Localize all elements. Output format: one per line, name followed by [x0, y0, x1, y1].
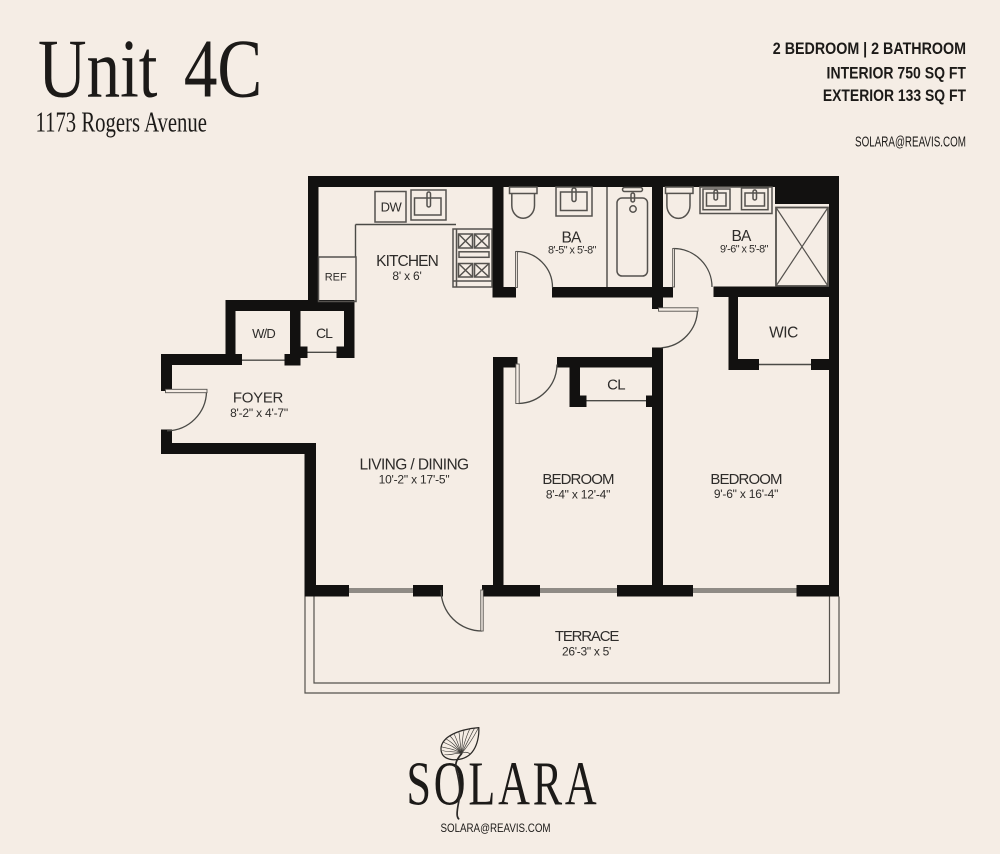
svg-text:REF: REF: [325, 271, 347, 283]
svg-text:8'-2" x 4'-7": 8'-2" x 4'-7": [230, 406, 288, 420]
svg-text:SOLARA@REAVIS.COM: SOLARA@REAVIS.COM: [855, 134, 966, 150]
svg-text:DW: DW: [381, 199, 403, 214]
svg-text:9'-6" x 5'-8": 9'-6" x 5'-8": [720, 244, 769, 256]
svg-text:LIVING / DINING: LIVING / DINING: [360, 457, 469, 474]
svg-text:W/D: W/D: [252, 326, 275, 341]
svg-text:8'-5" x 5'-8": 8'-5" x 5'-8": [548, 245, 597, 257]
svg-text:TERRACE: TERRACE: [555, 628, 619, 645]
svg-text:CL: CL: [316, 325, 333, 341]
svg-text:BA: BA: [731, 228, 752, 245]
svg-text:9'-6" x 16'-4": 9'-6" x 16'-4": [714, 487, 778, 501]
svg-text:WIC: WIC: [769, 325, 798, 342]
svg-text:KITCHEN: KITCHEN: [376, 253, 438, 270]
svg-text:BEDROOM: BEDROOM: [710, 471, 782, 488]
svg-text:8'-4" x 12'-4": 8'-4" x 12'-4": [546, 488, 610, 502]
svg-text:CL: CL: [607, 377, 625, 394]
svg-text:BEDROOM: BEDROOM: [542, 471, 614, 488]
svg-text:8' x 6': 8' x 6': [392, 269, 421, 283]
svg-text:INTERIOR 750 SQ FT: INTERIOR 750 SQ FT: [827, 64, 967, 83]
svg-text:FOYER: FOYER: [233, 390, 284, 407]
svg-text:26'-3" x 5': 26'-3" x 5': [562, 645, 611, 659]
svg-text:10'-2" x 17'-5": 10'-2" x 17'-5": [379, 473, 450, 487]
svg-text:2 BEDROOM | 2 BATHROOM: 2 BEDROOM | 2 BATHROOM: [773, 40, 966, 58]
svg-text:Unit 4C: Unit 4C: [38, 23, 262, 116]
svg-text:EXTERIOR 133 SQ FT: EXTERIOR 133 SQ FT: [823, 87, 967, 106]
svg-text:1173 Rogers Avenue: 1173 Rogers Avenue: [36, 108, 208, 139]
svg-text:SOLARA: SOLARA: [406, 749, 599, 818]
svg-text:SOLARA@REAVIS.COM: SOLARA@REAVIS.COM: [440, 822, 550, 835]
